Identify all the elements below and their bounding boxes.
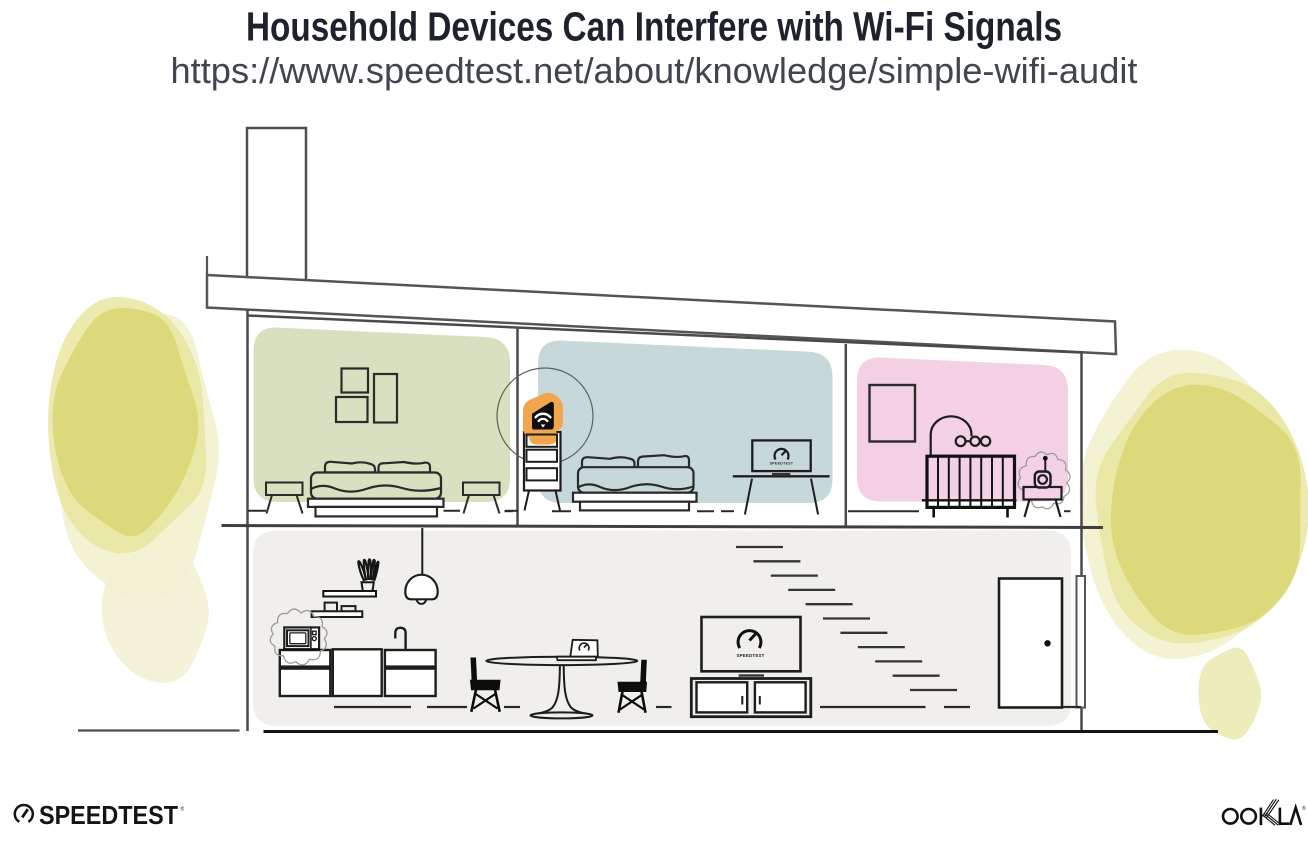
svg-text:Household Devices Can Interfer: Household Devices Can Interfere with Wi-… bbox=[246, 4, 1062, 50]
svg-text:®: ® bbox=[181, 806, 185, 813]
svg-text:SPEEDTEST: SPEEDTEST bbox=[737, 653, 765, 658]
svg-text:SPEEDTEST: SPEEDTEST bbox=[39, 802, 178, 830]
svg-text:SPEEDTEST: SPEEDTEST bbox=[770, 462, 794, 466]
svg-text:®: ® bbox=[1302, 805, 1306, 812]
svg-text:https://www.speedtest.net/abou: https://www.speedtest.net/about/knowledg… bbox=[171, 50, 1138, 91]
